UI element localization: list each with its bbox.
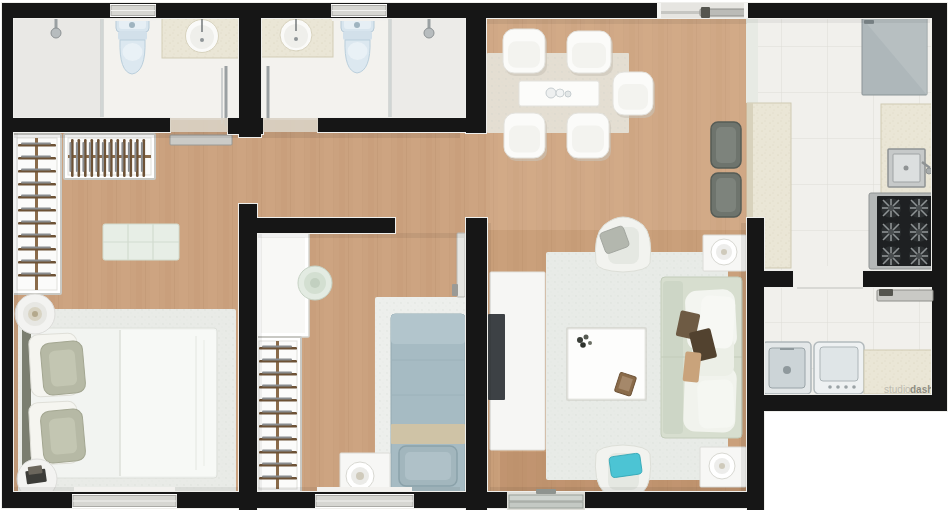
svg-text:dash: dash xyxy=(910,384,933,395)
svg-text:studio: studio xyxy=(884,384,911,395)
